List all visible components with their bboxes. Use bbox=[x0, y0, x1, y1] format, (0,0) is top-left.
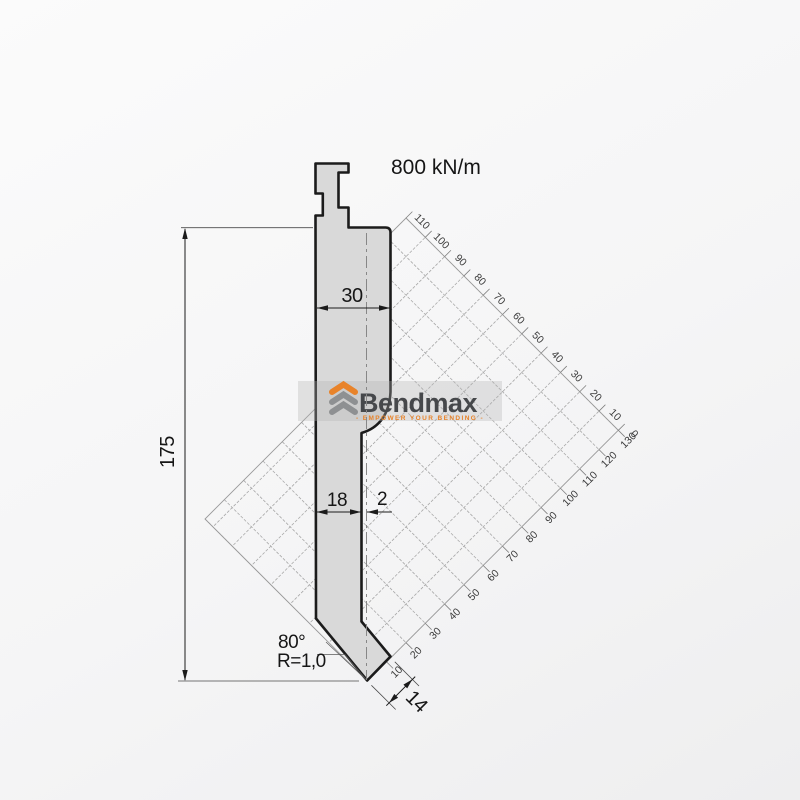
shaft-width-value: 18 bbox=[327, 490, 347, 511]
grid-tick bbox=[425, 231, 431, 237]
grid-tick bbox=[445, 250, 451, 256]
grid-tick bbox=[483, 289, 489, 295]
grid-scale-label: 100 bbox=[431, 231, 452, 252]
grid-tick bbox=[406, 212, 412, 218]
technical-drawing-page: 1101009080706050403020100102030405060708… bbox=[0, 0, 800, 800]
tip-angle-label: 80° bbox=[278, 632, 305, 653]
dimension-offset: 2 bbox=[367, 489, 392, 515]
grid-tick bbox=[580, 385, 586, 391]
grid-tick bbox=[560, 366, 566, 372]
grid-border bbox=[205, 218, 618, 681]
height-value: 175 bbox=[157, 436, 179, 468]
grid-line bbox=[185, 422, 433, 669]
grid-scale-label: 110 bbox=[412, 212, 432, 232]
punch-profile bbox=[316, 164, 391, 681]
punch-tool-drawing: 1101009080706050403020100102030405060708… bbox=[0, 0, 800, 800]
brand-name: Bendmax bbox=[359, 388, 478, 418]
force-rating-label: 800 kN/m bbox=[391, 156, 481, 179]
tip-width-value: 14 bbox=[401, 686, 432, 717]
grid-line bbox=[359, 248, 607, 496]
grid-line bbox=[378, 229, 626, 476]
grid-tick bbox=[618, 424, 624, 430]
grid-tick bbox=[541, 347, 547, 353]
watermark: Bendmax - EMPOWER YOUR BENDING - bbox=[298, 381, 502, 422]
grid-tick bbox=[503, 308, 509, 314]
grid-tick bbox=[522, 327, 528, 333]
brand-tagline: - EMPOWER YOUR BENDING - bbox=[356, 415, 484, 422]
body-width-value: 30 bbox=[341, 285, 363, 307]
offset-value: 2 bbox=[377, 489, 387, 510]
tip-radius-label: R=1,0 bbox=[277, 651, 326, 672]
grid-tick bbox=[464, 270, 470, 276]
grid-tick bbox=[599, 405, 605, 411]
